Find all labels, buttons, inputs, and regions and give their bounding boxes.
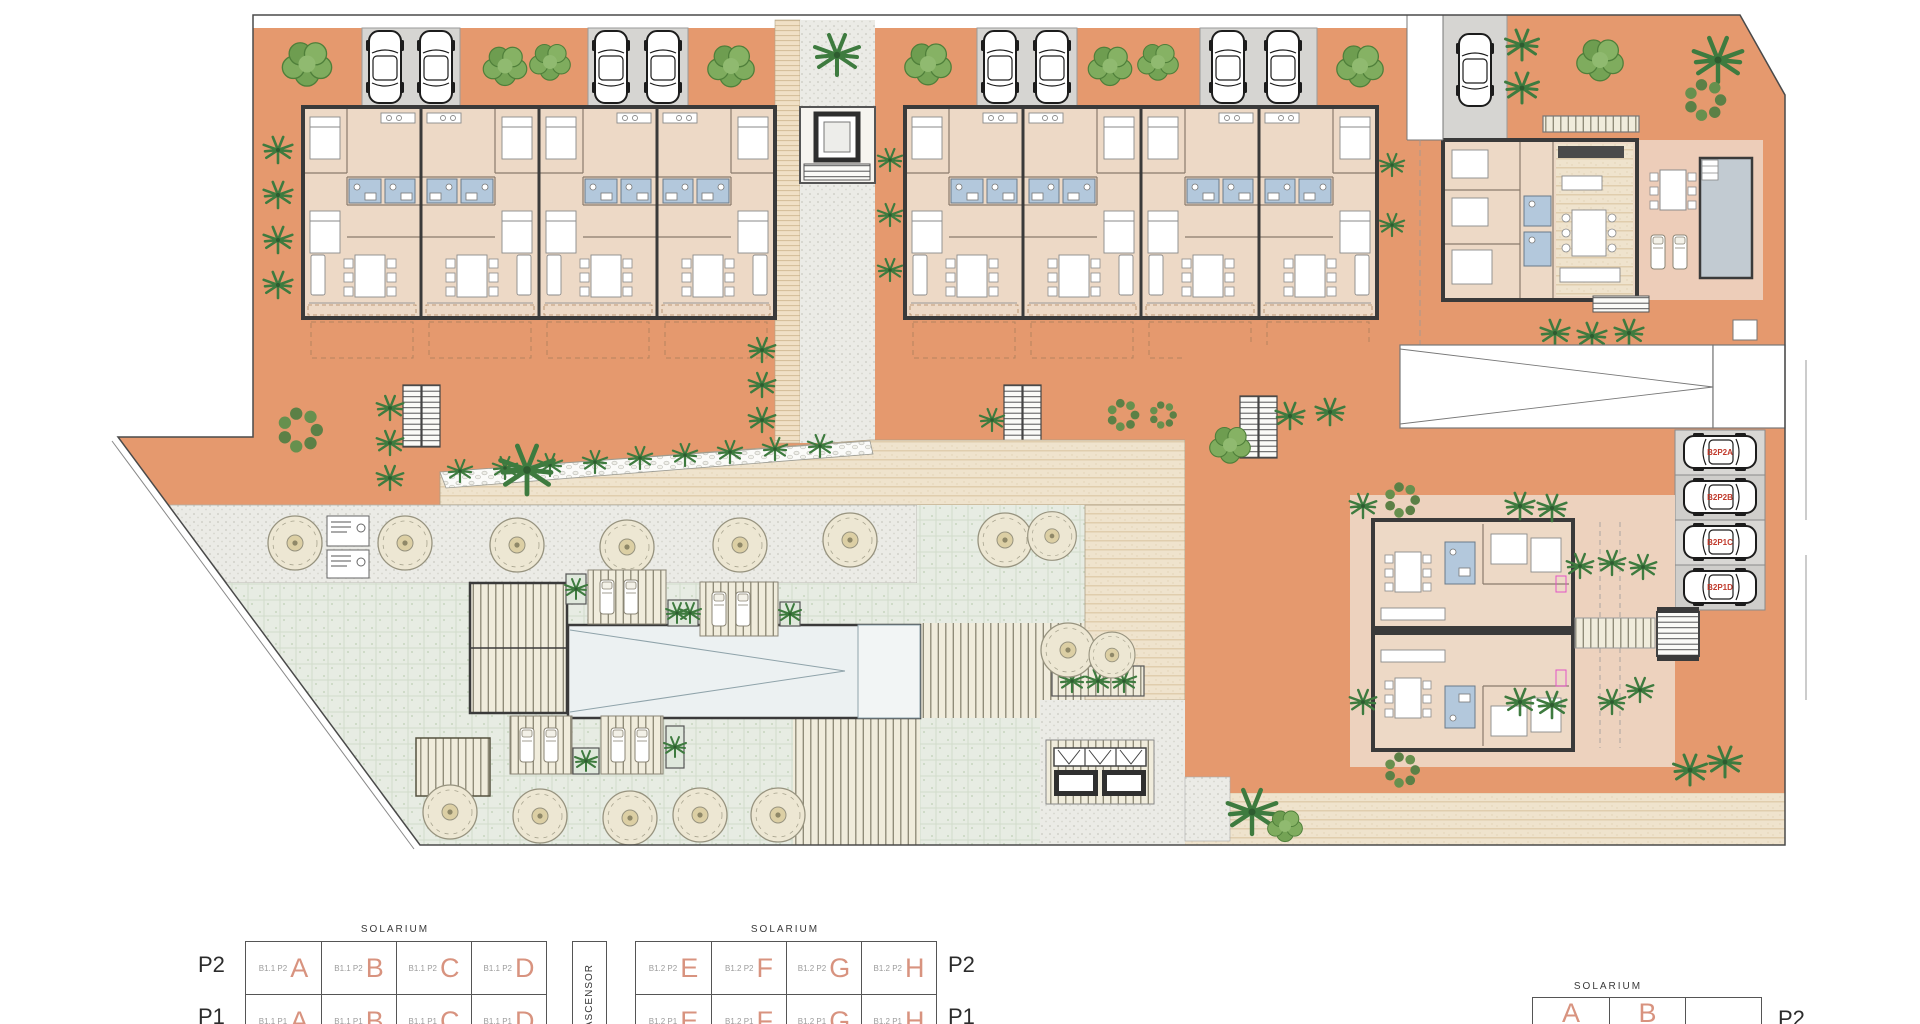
apartment-unit-c [539,107,657,318]
stairs-icon [1259,396,1277,458]
b2-entry-stairs [1657,612,1699,656]
site-plan-drawing: B2P2A B2P2B B2P1C B2P1D [0,0,1920,1024]
apartment-unit-h [1259,107,1377,318]
sun-lounger-icon [520,728,534,762]
round-tree-icon [1041,623,1095,677]
unit-cell[interactable]: B1.1 P2D [471,942,546,994]
unit-cell[interactable]: B1.1 P2B [321,942,396,994]
b2-entry-path [1575,618,1655,648]
villa-building [1443,140,1637,300]
car-icon [1033,31,1071,103]
unit-cell[interactable]: B1.2 P1F [711,995,786,1024]
sun-lounger-icon [544,728,558,762]
round-tree-icon [673,788,727,842]
solarium-table-b11: B1.1 P2A B1.1 P2B B1.1 P2C B1.1 P2D B1.1… [245,941,547,1024]
solarium-title-3: SOLARIUM [1532,981,1684,992]
car-icon [981,31,1019,103]
solarium-title-2: SOLARIUM [635,924,935,935]
table-row: A B [1533,998,1761,1024]
parking-space-label: B2P1C [1707,538,1733,547]
unit-cell[interactable]: B1.2 P2F [711,942,786,994]
table-row-p1: B1.1 P1A B1.1 P1B B1.1 P1C B1.1 P1D [246,994,546,1024]
stairs-icon [422,385,440,447]
round-tree-icon [378,516,432,570]
block-b2-zone: B2P2A B2P2B B2P1C B2P1D [1185,345,1785,845]
car-icon [1264,31,1302,103]
villa-entry-stairs [1593,296,1649,312]
villa-parcel [1443,15,1785,349]
apartment-unit-e [905,107,1023,318]
staircase [804,164,870,180]
car-icon [1456,34,1494,106]
building-b2 [1373,520,1573,750]
unit-cell[interactable]: B1.1 P2A [246,942,321,994]
floor-label-p1-left: P1 [198,1004,225,1024]
sun-lounger-icon [712,592,726,626]
parking-space-label: B2P1D [1707,583,1733,592]
stairs-icon [1004,385,1022,447]
apartment-unit-d [657,107,775,318]
solarium-table-b2: A B [1532,997,1762,1024]
unit-cell[interactable]: A [1533,998,1609,1024]
floor-label-p1-right: P1 [948,1004,975,1024]
elevator-box: ASCENSOR [572,941,607,1024]
sun-lounger-icon [635,728,649,762]
car-icon [1209,31,1247,103]
round-tree-icon [978,513,1032,567]
round-tree-icon [513,789,567,843]
pool-deck [793,718,920,845]
apartment-unit-a [303,107,421,318]
round-tree-icon [1089,632,1135,678]
pool-toilets-block [1046,740,1154,804]
unit-cell[interactable]: B [1609,998,1685,1024]
table-row-p1: B1.2 P1E B1.2 P1F B1.2 P1G B1.2 P1H [636,994,936,1024]
table-row-p2: B1.1 P2A B1.1 P2B B1.1 P2C B1.1 P2D [246,942,546,994]
round-tree-icon [823,513,877,567]
floor-label-far-right: P2 [1778,1006,1805,1024]
unit-cell[interactable]: B1.1 P1B [321,995,396,1024]
garage-ramp [1400,345,1785,428]
round-tree-icon [713,518,767,572]
gravel-band [168,505,917,583]
table-row-p2: B1.2 P2E B1.2 P2F B1.2 P2G B1.2 P2H [636,942,936,994]
sun-lounger-icon [1673,235,1687,269]
round-tree-icon [600,520,654,574]
round-tree-icon [1028,512,1077,561]
site-plan-page: B2P2A B2P2B B2P1C B2P1D [0,0,1920,1024]
round-tree-icon [423,785,477,839]
sun-lounger-icon [736,592,750,626]
round-tree-icon [490,518,544,572]
sun-lounger-icon [624,580,638,614]
apartment-unit-g [1141,107,1259,318]
unit-cell[interactable]: B1.1 P1C [396,995,471,1024]
round-tree-icon [268,516,322,570]
unit-cell[interactable]: B1.2 P1E [636,995,711,1024]
round-tree-icon [603,791,657,845]
elevator-label: ASCENSOR [584,964,595,1024]
parking-space-label: B2P2B [1707,493,1733,502]
solarium-title-1: SOLARIUM [245,924,545,935]
solarium-table-b12: B1.2 P2E B1.2 P2F B1.2 P2G B1.2 P2H B1.2… [635,941,937,1024]
unit-cell[interactable]: B1.2 P2E [636,942,711,994]
car-icon [644,31,682,103]
outdoor-table [1660,170,1686,210]
stairs-icon [403,385,421,447]
parking-space-label: B2P2A [1707,448,1733,457]
outdoor-parking-spaces: B2P2A B2P2B B2P1C B2P1D [1675,430,1765,610]
unit-cell[interactable]: B1.2 P2H [861,942,936,994]
villa-pergola [1543,116,1639,132]
central-access-core [775,20,875,443]
unit-cell[interactable]: B1.1 P1A [246,995,321,1024]
unit-cell[interactable]: B1.2 P1G [786,995,861,1024]
sun-lounger-icon [611,728,625,762]
round-tree-icon [751,788,805,842]
car-icon [417,31,455,103]
sun-lounger-icon [1651,235,1665,269]
unit-cell[interactable]: B1.1 P1D [471,995,546,1024]
unit-cell[interactable]: B1.2 P1H [861,995,936,1024]
sun-lounger-icon [600,580,614,614]
car-icon [366,31,404,103]
floor-label-p2-right: P2 [948,952,975,978]
unit-cell[interactable]: B1.2 P2G [786,942,861,994]
unit-cell[interactable] [1685,998,1761,1024]
floor-label-p2-left: P2 [198,952,225,978]
apartment-unit-b [421,107,539,318]
stairs-icon [1023,385,1041,447]
apartment-unit-f [1023,107,1141,318]
unit-cell[interactable]: B1.1 P2C [396,942,471,994]
car-icon [592,31,630,103]
